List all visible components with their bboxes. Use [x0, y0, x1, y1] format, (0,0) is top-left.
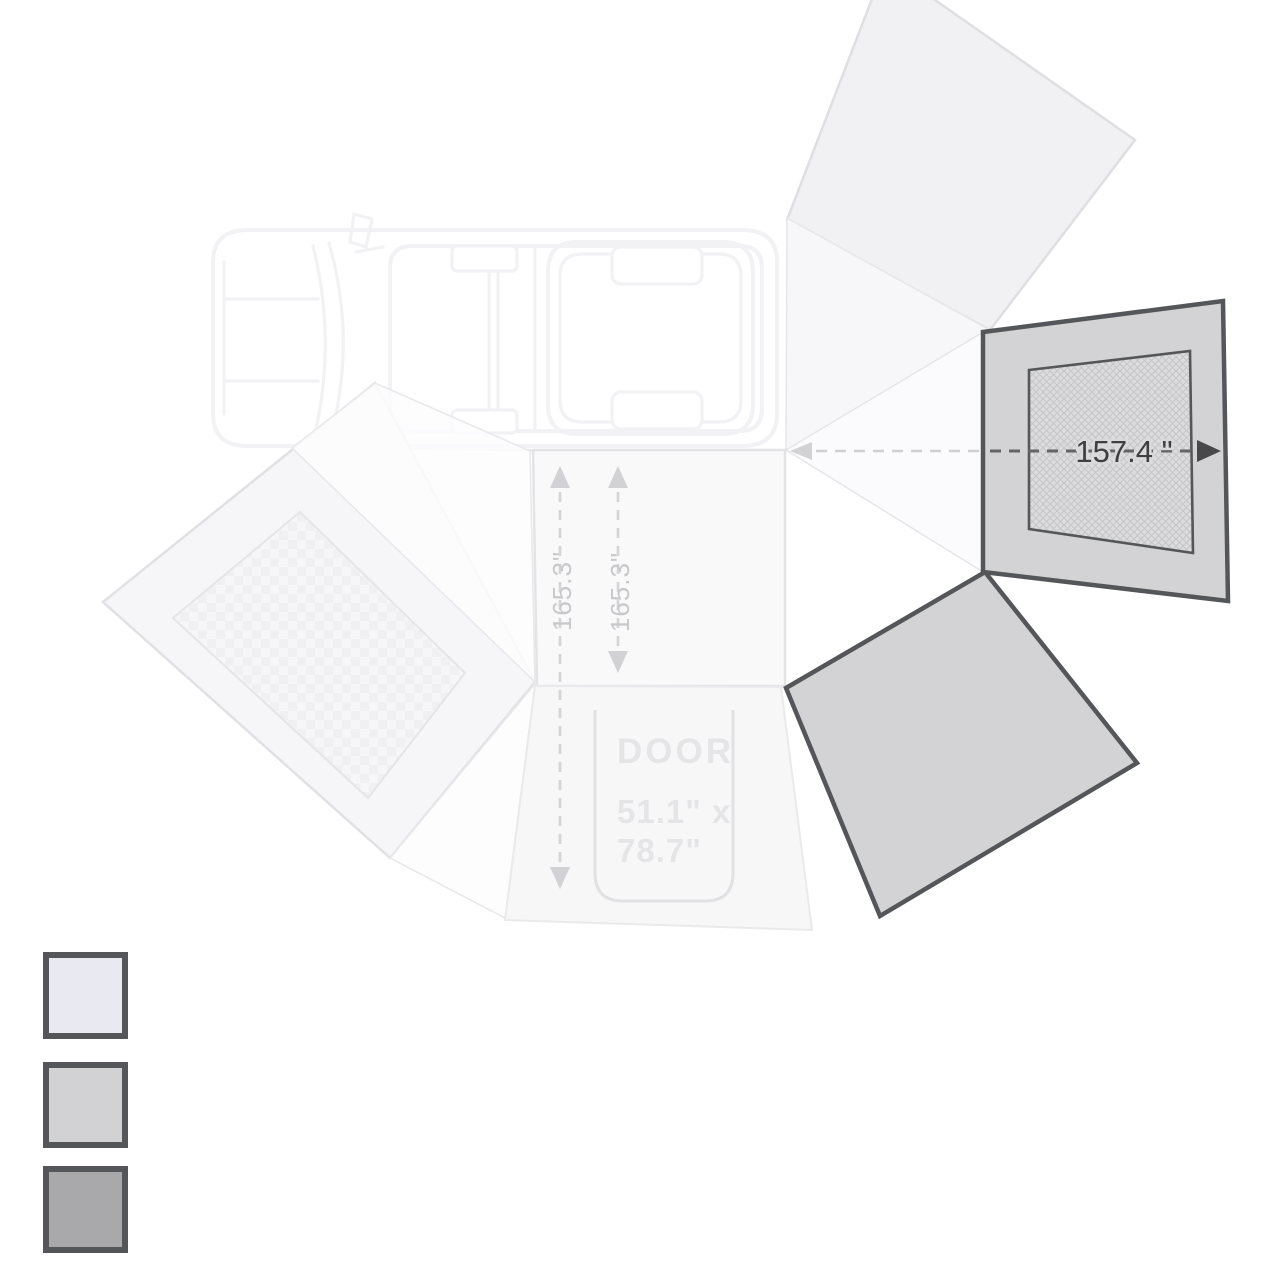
vehicle-outline [213, 214, 777, 462]
vehicle-windshield-arc [329, 243, 343, 431]
awning-panel-left [103, 383, 535, 918]
door-size-line2: 78.7" [617, 832, 702, 869]
legend [46, 955, 125, 1250]
awning-panel-bottom-right-shape [786, 572, 1137, 916]
awning-door-panel: DOOR 51.1" x 78.7" [505, 686, 812, 930]
awning-panel-bottom-right [786, 572, 1137, 916]
awning-footprint-diagram: DOOR 51.1" x 78.7" 165.3" 165.3" 157.4 " [0, 0, 1280, 1280]
door-label: DOOR [617, 732, 734, 771]
vehicle-cargo-notch-bottom [612, 392, 702, 429]
vehicle-cowl-arc [313, 246, 325, 429]
legend-swatch-medium-gray [46, 1169, 125, 1250]
vehicle-roof-rect [390, 246, 762, 431]
vehicle-cargo-notch-top [612, 247, 702, 284]
vehicle-a-pillar-top [356, 247, 383, 252]
awning-width-label: 157.4 " [1075, 434, 1172, 469]
depth-right-label: 165.3" [605, 552, 635, 632]
door-size-line1: 51.1" x [617, 793, 731, 830]
legend-swatch-lightest [46, 955, 125, 1036]
legend-swatch-light-gray [46, 1065, 125, 1145]
awning-diagram-page: DOOR 51.1" x 78.7" 165.3" 165.3" 157.4 " [0, 0, 1280, 1280]
vehicle-crossbar-pad-top [452, 246, 517, 271]
depth-left-label: 165.3" [547, 551, 577, 631]
